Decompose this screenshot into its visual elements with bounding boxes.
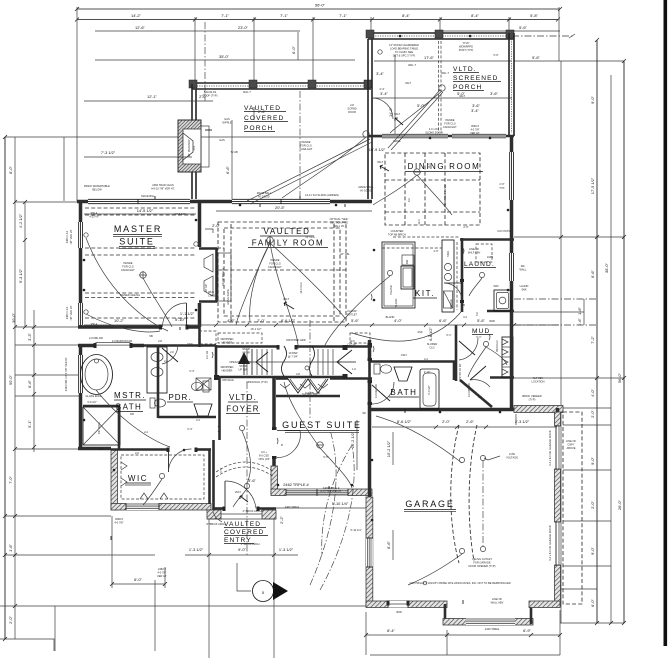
svg-text:PDR.: PDR.: [168, 393, 191, 402]
svg-text:DROPPED: DROPPED: [221, 337, 234, 341]
svg-text:7'-0": 7'-0": [8, 476, 13, 484]
svg-text:5'-1": 5'-1": [27, 420, 32, 428]
svg-text:VALT: VALT: [459, 94, 466, 98]
svg-text:MAL.T: MAL.T: [243, 90, 251, 94]
svg-text:DINING ROOM: DINING ROOM: [408, 162, 481, 171]
svg-text:6-4 1/2": 6-4 1/2": [428, 327, 433, 341]
svg-text:DET & SPC 3 TYP): DET & SPC 3 TYP): [393, 54, 416, 58]
svg-text:1'-6": 1'-6": [577, 307, 582, 315]
svg-text:COV PATIO: COV PATIO: [497, 229, 511, 233]
svg-text:3-0 BARN DOOR: 3-0 BARN DOOR: [112, 339, 132, 343]
svg-text:DR. WALL: DR. WALL: [97, 421, 101, 434]
svg-text:MSTR.: MSTR.: [114, 391, 146, 400]
svg-text:VAULTED: VAULTED: [224, 521, 261, 528]
svg-text:3068 #: 3068 #: [115, 517, 123, 521]
svg-text:6'-1": 6'-1": [476, 335, 481, 339]
svg-text:VER HT.: VER HT.: [470, 131, 480, 135]
svg-text:3'-6": 3'-6": [248, 478, 256, 483]
svg-text:350-4: 350-4: [91, 322, 98, 326]
svg-text:OPEN RAIL (TYP): OPEN RAIL (TYP): [229, 360, 250, 364]
svg-text:FOR CLG: FOR CLG: [269, 262, 281, 266]
svg-text:1'-6": 1'-6": [8, 544, 13, 552]
svg-text:CLG HT: CLG HT: [347, 343, 357, 347]
svg-text:5'-5": 5'-5": [323, 455, 328, 459]
svg-text:12'-1": 12'-1": [147, 94, 158, 99]
svg-text:GLASS ENCL.: GLASS ENCL.: [85, 394, 102, 398]
svg-text:4-23 VF: 4-23 VF: [89, 326, 99, 330]
svg-text:6'-6": 6'-6": [439, 318, 447, 323]
svg-text:190B: 190B: [487, 255, 493, 259]
svg-text:BENCH #: BENCH #: [495, 340, 499, 352]
svg-text:WDWRPPD: WDWRPPD: [459, 45, 473, 49]
svg-text:9-0 x 8-0 OH GARAGE DOOR: 9-0 x 8-0 OH GARAGE DOOR: [548, 430, 552, 465]
svg-text:5'-5": 5'-5": [219, 467, 223, 472]
svg-text:8-0 CSD: 8-0 CSD: [259, 454, 269, 458]
svg-text:3060 #: 3060 #: [471, 124, 479, 128]
svg-text:2-4: 2-4: [196, 418, 200, 422]
svg-text:6'-0": 6'-0": [291, 46, 296, 54]
svg-text:VLTD.: VLTD.: [453, 66, 477, 73]
svg-text:OPEN RAIL (TYP): OPEN RAIL (TYP): [246, 380, 267, 384]
svg-text:RAISED CEILNG: RAISED CEILNG: [120, 293, 140, 297]
svg-text:2460 # 4-0: 2460 # 4-0: [65, 306, 69, 319]
svg-text:SNK: SNK: [521, 288, 527, 292]
svg-text:4-0 DEL DR: 4-0 DEL DR: [374, 384, 378, 398]
svg-text:8'-0": 8'-0": [8, 166, 13, 174]
svg-text:FLOOR: FLOOR: [348, 309, 357, 313]
svg-text:VER HT.: VER HT.: [157, 574, 167, 578]
svg-text:VOLTAGE: VOLTAGE: [506, 456, 518, 460]
svg-text:LOAD BEARING TABLE: LOAD BEARING TABLE: [390, 47, 418, 51]
svg-text:3040: 3040: [396, 610, 402, 614]
svg-text:10 RSR: 10 RSR: [288, 351, 297, 355]
svg-text:2-6: 2-6: [170, 350, 174, 354]
svg-text:56'-0": 56'-0": [315, 3, 326, 8]
svg-text:9-0 x 8-0 OH GARAGE DOOR: 9-0 x 8-0 OH GARAGE DOOR: [548, 525, 552, 560]
svg-text:14'-0": 14'-0": [388, 106, 393, 117]
svg-text:2-4: 2-4: [144, 430, 148, 434]
svg-text:RECESSED CLNG: RECESSED CLNG: [443, 185, 447, 207]
svg-text:SINK: SINK: [446, 251, 450, 257]
svg-text:TILE: TILE: [98, 447, 104, 451]
svg-text:DR: DR: [130, 412, 134, 416]
svg-text:WHC: WHC: [208, 290, 214, 294]
svg-text:FAN/LGHT: FAN/LGHT: [300, 147, 313, 151]
svg-text:3'-6": 3'-6": [472, 103, 480, 108]
svg-text:2'-0": 2'-0": [8, 616, 13, 624]
svg-text:6'-0": 6'-0": [590, 599, 595, 607]
svg-text:1'-6": 1'-6": [577, 318, 582, 326]
svg-text:2460 TABLE: 2460 TABLE: [285, 505, 300, 509]
svg-text:STAIR: STAIR: [239, 364, 247, 368]
svg-text:2-8: 2-8: [158, 339, 162, 343]
svg-text:SD: SD: [362, 411, 366, 415]
svg-text:4'-2 1/2": 4'-2 1/2": [18, 213, 23, 228]
svg-text:HI GOOD: HI GOOD: [360, 189, 371, 193]
svg-text:2'-10": 2'-10": [424, 370, 431, 374]
svg-text:LOCATION: LOCATION: [531, 380, 544, 384]
svg-text:6'-9": 6'-9": [523, 628, 531, 633]
svg-text:CSLY: CSLY: [401, 353, 408, 357]
svg-text:14'-3 1/2": 14'-3 1/2": [175, 212, 186, 216]
svg-text:7'-1": 7'-1": [221, 13, 229, 18]
svg-text:2'-0": 2'-0": [463, 225, 468, 229]
svg-text:2462 TRPLE #: 2462 TRPLE #: [283, 482, 309, 487]
svg-text:CHAS: CHAS: [208, 294, 215, 298]
svg-text:8'-6": 8'-6": [590, 270, 595, 278]
svg-text:OPG (OP: OPG (OP: [258, 457, 269, 461]
svg-text:(TYP): (TYP): [529, 398, 536, 402]
svg-text:NIPPLE: NIPPLE: [222, 121, 231, 125]
svg-text:5'-10": 5'-10": [175, 317, 186, 322]
svg-text:3'-3": 3'-3": [27, 333, 32, 341]
svg-text:WALL ABV: WALL ABV: [491, 601, 504, 605]
svg-text:5'-10 1/4": 5'-10 1/4": [351, 528, 362, 532]
svg-text:8'-6": 8'-6": [386, 541, 391, 549]
svg-text:8-10 7/8" VER HT.: 8-10 7/8" VER HT.: [320, 490, 341, 494]
svg-text:8'-6 1/2": 8'-6 1/2": [281, 318, 296, 323]
svg-text:FOR GARAGE: FOR GARAGE: [473, 561, 491, 565]
svg-text:MACE BALL: MACE BALL: [257, 191, 272, 195]
svg-text:5-0: 5-0: [475, 312, 479, 316]
svg-text:30'-0": 30'-0": [11, 312, 16, 323]
svg-text:VALT: VALT: [405, 81, 412, 85]
svg-text:6-0: 6-0: [407, 198, 411, 202]
svg-text:17'-6": 17'-6": [424, 55, 435, 60]
svg-text:1-0: 1-0: [352, 367, 356, 371]
svg-text:2'-3 1/2": 2'-3 1/2": [515, 419, 530, 424]
svg-text:14-0 CLG: 14-0 CLG: [299, 282, 303, 293]
svg-text:WALL: WALL: [520, 268, 528, 272]
svg-text:FAMILY ROOM: FAMILY ROOM: [252, 239, 324, 248]
svg-text:8'-6 1/2": 8'-6 1/2": [397, 419, 412, 424]
svg-text:5'-6": 5'-6": [532, 55, 540, 60]
svg-text:2460 TABLE #: 2460 TABLE #: [323, 486, 340, 490]
svg-text:3-4: 3-4: [478, 395, 482, 399]
svg-text:2'-0": 2'-0": [257, 318, 265, 323]
svg-text:POST (TYP): POST (TYP): [459, 48, 474, 52]
svg-text:2460 #: 2460 #: [158, 567, 166, 571]
svg-text:PENDE: PENDE: [446, 118, 455, 122]
svg-text:50'-0": 50'-0": [8, 374, 13, 385]
svg-text:6'-3": 6'-3": [187, 427, 192, 431]
svg-text:4-23 VF: 4-23 VF: [89, 215, 99, 219]
svg-text:VALT: VALT: [283, 297, 290, 301]
svg-text:4-0 DBL DR: 4-0 DBL DR: [467, 383, 471, 397]
svg-text:SCREENED: SCREENED: [453, 75, 498, 82]
svg-text:FAN/LIGHT: FAN/LIGHT: [121, 268, 135, 272]
svg-text:CLG: CLG: [429, 346, 434, 350]
svg-text:26'-0": 26'-0": [617, 499, 622, 510]
svg-text:FPL: FPL: [192, 145, 196, 150]
svg-text:3'-6": 3'-6": [490, 91, 498, 96]
svg-text:MACE BILL: MACE BILL: [141, 194, 155, 198]
svg-text:2-6 DBL DR: 2-6 DBL DR: [89, 336, 103, 340]
svg-text:OUTLET: OUTLET: [347, 313, 358, 317]
svg-text:12'-6": 12'-6": [135, 25, 146, 30]
svg-text:9'-0": 9'-0": [590, 96, 595, 104]
svg-text:DR.: DR.: [521, 264, 526, 268]
svg-text:VAULTED: VAULTED: [244, 105, 281, 112]
svg-text:SSD: SSD: [187, 342, 192, 346]
svg-text:35'-0": 35'-0": [219, 54, 230, 59]
svg-text:UP 8R: UP 8R: [242, 351, 250, 355]
svg-text:24" DP BENCH: 24" DP BENCH: [221, 268, 225, 286]
svg-text:DROPPED HDR: DROPPED HDR: [286, 338, 305, 342]
svg-text:ISLAND: ISLAND: [389, 285, 393, 294]
svg-text:8'-4": 8'-4": [402, 13, 410, 18]
svg-text:350-4: 350-4: [91, 211, 98, 215]
svg-text:@ 7 3/4": @ 7 3/4": [288, 355, 298, 359]
svg-text:GAS: GAS: [224, 117, 230, 121]
svg-text:3'-4": 3'-4": [379, 87, 384, 91]
svg-text:DOOR OPENER (TYP): DOOR OPENER (TYP): [469, 564, 496, 568]
svg-text:9'-0": 9'-0": [590, 547, 595, 555]
svg-text:9-0 DBL. DR.: 9-0 DBL. DR.: [305, 391, 321, 395]
svg-text:1'-3 1/2": 1'-3 1/2": [189, 547, 204, 552]
svg-text:4-0 7/8": 4-0 7/8": [158, 571, 167, 575]
svg-text:GAS: GAS: [219, 138, 225, 142]
svg-text:"6"x6": "6"x6": [463, 41, 470, 45]
svg-text:B: B: [463, 303, 465, 307]
svg-text:5: 5: [262, 590, 264, 595]
svg-text:2'-0": 2'-0": [499, 182, 504, 186]
svg-text:ALT KEY: ALT KEY: [533, 376, 544, 380]
svg-text:38'-0": 38'-0": [604, 262, 609, 273]
svg-text:1'-1 1/2": 1'-1 1/2": [180, 311, 195, 316]
svg-text:UP 16R: UP 16R: [238, 368, 247, 372]
svg-text:3'-4": 3'-4": [380, 91, 388, 96]
svg-text:4'-0": 4'-0": [394, 318, 402, 323]
svg-text:FRIDGE: FRIDGE: [449, 299, 453, 309]
svg-text:2-4: 2-4: [424, 357, 428, 361]
svg-text:PNTRY 16 DP: PNTRY 16 DP: [458, 363, 462, 380]
svg-text:6'-3": 6'-3": [189, 369, 194, 373]
svg-text:OPTICAL "SEE": OPTICAL "SEE": [330, 217, 349, 221]
svg-text:1'-3 1/2": 1'-3 1/2": [279, 547, 294, 552]
svg-text:10'-2 1/2": 10'-2 1/2": [386, 440, 391, 457]
svg-text:4'-6": 4'-6": [227, 318, 235, 323]
svg-text:DOOR: DOOR: [348, 110, 356, 114]
svg-text:WALL VF.: WALL VF.: [333, 224, 345, 228]
svg-text:2460 TRAD CHAS: 2460 TRAD CHAS: [152, 183, 174, 187]
svg-text:LAUND: LAUND: [520, 284, 529, 288]
svg-text:SLAND: SLAND: [394, 299, 398, 308]
svg-text:FOR CLG: FOR CLG: [300, 144, 312, 148]
svg-text:10'-2": 10'-2": [114, 318, 125, 323]
svg-text:HEADER: HEADER: [222, 369, 233, 373]
svg-text:LINE OF: LINE OF: [469, 247, 480, 251]
svg-text:2-4: 2-4: [164, 359, 168, 363]
svg-text:9'-0": 9'-0": [590, 457, 595, 465]
svg-text:GARAGE: GARAGE: [405, 499, 454, 509]
svg-text:COVERED: COVERED: [244, 115, 284, 122]
svg-text:8" BRICK ARCH: 8" BRICK ARCH: [207, 522, 226, 526]
svg-text:12-0: 12-0: [427, 163, 431, 169]
svg-text:20'-5": 20'-5": [275, 205, 286, 210]
svg-text:14' CLG: 14' CLG: [305, 235, 314, 239]
svg-text:MAKE WALL: MAKE WALL: [358, 185, 374, 189]
svg-text:5'-8": 5'-8": [530, 13, 538, 18]
svg-text:KIT.: KIT.: [415, 289, 435, 298]
svg-text:SLOPED: SLOPED: [427, 342, 438, 346]
svg-text:2-8: 2-8: [296, 372, 300, 376]
svg-text:2444 TWL # 8-0 7/8" VER HT.: 2444 TWL # 8-0 7/8" VER HT.: [64, 357, 68, 392]
svg-text:42" MASONRY: 42" MASONRY: [187, 139, 191, 157]
svg-text:5'-6": 5'-6": [519, 25, 527, 30]
svg-text:4-0 7/8": 4-0 7/8": [471, 128, 480, 132]
svg-text:2'-0": 2'-0": [442, 419, 450, 424]
svg-text:9'-3 1/2": 9'-3 1/2": [18, 268, 23, 283]
svg-text:5'-0 1/2": 5'-0 1/2": [427, 385, 431, 395]
svg-text:12-0: 12-0: [417, 219, 421, 225]
svg-text:BLAND: BLAND: [386, 315, 395, 319]
svg-text:BELOW: BELOW: [92, 188, 102, 192]
svg-text:GUEST SUITE: GUEST SUITE: [282, 420, 362, 430]
svg-text:6'-6": 6'-6": [225, 166, 230, 174]
svg-text:FAN/LIGHT: FAN/LIGHT: [443, 125, 457, 129]
svg-text:16'-1 1/2": 16'-1 1/2": [251, 327, 262, 331]
svg-text:2440 TABLE: 2440 TABLE: [485, 627, 500, 631]
svg-text:8'-4": 8'-4": [471, 13, 479, 18]
svg-text:10-0: 10-0: [349, 339, 355, 343]
svg-text:STAIR: STAIR: [242, 347, 250, 351]
svg-text:5'-6": 5'-6": [477, 318, 485, 323]
svg-text:HI GOOD: HI GOOD: [258, 195, 269, 199]
svg-text:WIC: WIC: [128, 474, 148, 483]
svg-text:MASTER: MASTER: [114, 224, 162, 234]
svg-text:VALT: VALT: [394, 112, 401, 116]
svg-text:14'-5 1/2": 14'-5 1/2": [137, 208, 154, 213]
svg-text:HEADER: HEADER: [222, 341, 233, 345]
svg-text:SHLF ABV: SHLF ABV: [468, 251, 481, 255]
svg-text:VALT.: VALT.: [235, 490, 242, 494]
svg-text:BATH: BATH: [390, 388, 417, 397]
svg-text:7'-1": 7'-1": [280, 13, 288, 18]
svg-text:4'-0": 4'-0": [433, 249, 438, 253]
svg-text:3-4: 3-4: [463, 315, 467, 319]
svg-text:LAUND.: LAUND.: [464, 261, 495, 268]
svg-text:VLTD.: VLTD.: [229, 393, 257, 402]
svg-text:SB: SB: [149, 334, 153, 338]
svg-text:7'-2": 7'-2": [590, 336, 595, 344]
svg-text:VAULTED: VAULTED: [264, 227, 311, 236]
svg-text:DW: DW: [405, 259, 409, 264]
svg-text:PENDE: PENDE: [302, 140, 311, 144]
svg-text:# 8-10 7/8" VER HT.: # 8-10 7/8" VER HT.: [151, 187, 175, 191]
svg-text:2'-0": 2'-0": [590, 410, 595, 418]
svg-text:23'-0": 23'-0": [238, 25, 249, 30]
svg-text:2460 # 4-0: 2460 # 4-0: [65, 230, 69, 243]
svg-text:12-0 x 8-0 SLDNG (HIDDEN): 12-0 x 8-0 SLDNG (HIDDEN): [305, 193, 339, 197]
svg-text:3'-9 1/2": 3'-9 1/2": [87, 400, 97, 404]
svg-text:FAN/LIGHT: FAN/LIGHT: [268, 265, 282, 269]
svg-text:2-8: 2-8: [350, 103, 354, 107]
svg-text:16" CBL: 16" CBL: [340, 252, 350, 256]
svg-text:7/8" VER HT.: 7/8" VER HT.: [69, 229, 73, 244]
svg-text:PORCH: PORCH: [244, 125, 273, 132]
svg-text:DROPPED: DROPPED: [221, 365, 234, 369]
svg-text:3-0 +: 3-0 +: [261, 450, 267, 454]
svg-text:2-6: 2-6: [135, 451, 139, 455]
svg-text:2'-0": 2'-0": [590, 501, 595, 509]
svg-text:B: B: [281, 443, 283, 447]
svg-text:5'-10 1/4": 5'-10 1/4": [332, 501, 349, 506]
svg-text:4-0 x 8-0: 4-0 x 8-0: [429, 127, 440, 131]
svg-text:14'-2": 14'-2": [131, 13, 142, 18]
svg-text:3'-4": 3'-4": [471, 108, 479, 113]
svg-text:PENDE: PENDE: [271, 258, 280, 262]
svg-text:W/D: W/D: [493, 284, 498, 288]
svg-text:AGNG SGPE: AGNG SGPE: [226, 289, 230, 305]
svg-text:MUD: MUD: [472, 328, 490, 335]
svg-text:SLDNG DOOR: SLDNG DOOR: [425, 131, 443, 135]
svg-text:6'-6": 6'-6": [27, 380, 32, 388]
svg-text:10'-2 1/2": 10'-2 1/2": [350, 431, 355, 448]
svg-text:5'-6": 5'-6": [351, 318, 359, 323]
svg-text:WAL.T: WAL.T: [441, 71, 449, 75]
svg-text:7/8" VER HT.: 7/8" VER HT.: [69, 305, 73, 320]
svg-text:12" ROOM CHAMFERED: 12" ROOM CHAMFERED: [389, 43, 419, 47]
svg-text:CNPY: CNPY: [567, 443, 574, 447]
svg-text:ABOVE: ABOVE: [567, 446, 576, 450]
svg-text:2-0 1/2: 2-0 1/2: [205, 350, 209, 359]
svg-text:MAKE: MAKE: [393, 139, 401, 143]
svg-text:FOR CLG: FOR CLG: [122, 265, 134, 269]
svg-text:VALT: VALT: [377, 160, 384, 164]
svg-text:7'-3 1/2": 7'-3 1/2": [101, 150, 116, 155]
svg-text:WAL.T: WAL.T: [408, 63, 416, 67]
svg-text:2'-2": 2'-2": [279, 516, 284, 524]
svg-text:2-6: 2-6: [428, 334, 432, 338]
svg-text:2'-0": 2'-0": [212, 223, 220, 228]
svg-text:BALNS AS: BALNS AS: [204, 90, 217, 94]
svg-text:PORCH: PORCH: [453, 84, 482, 91]
svg-text:OPN RAIL: OPN RAIL: [222, 378, 235, 382]
svg-text:COUNTER: COUNTER: [391, 229, 404, 233]
svg-text:5'-0": 5'-0": [417, 103, 425, 108]
svg-text:7'-1": 7'-1": [339, 13, 347, 18]
svg-text:17'-5 1/2": 17'-5 1/2": [590, 177, 595, 194]
svg-text:SECTION FIVE: SECTION FIVE: [330, 221, 348, 225]
svg-text:SUITE: SUITE: [119, 237, 155, 247]
svg-text:LINE OF: LINE OF: [492, 597, 503, 601]
svg-text:6'-1": 6'-1": [446, 333, 451, 337]
svg-text:SCRND: SCRND: [347, 107, 356, 111]
svg-text:3'-4": 3'-4": [376, 71, 384, 76]
svg-text:FOR CLG: FOR CLG: [444, 122, 456, 126]
svg-text:1" BRICK ARCH: 1" BRICK ARCH: [241, 542, 260, 546]
svg-text:6'-0": 6'-0": [134, 577, 142, 582]
svg-text:BATH: BATH: [116, 403, 142, 412]
svg-text:10'-9 1/2": 10'-9 1/2": [369, 147, 386, 152]
svg-text:CELNG OUTLET: CELNG OUTLET: [472, 557, 492, 561]
svg-text:COVERED: COVERED: [224, 529, 264, 536]
svg-text:LOW: LOW: [509, 452, 515, 456]
svg-text:2'-6": 2'-6": [466, 419, 474, 424]
svg-text:9'-0": 9'-0": [238, 547, 246, 552]
svg-text:BRICK WATERTABLE: BRICK WATERTABLE: [84, 184, 110, 188]
svg-text:4-0 7/8": 4-0 7/8": [115, 521, 124, 525]
svg-text:5'-6": 5'-6": [493, 53, 498, 57]
svg-text:PENDE: PENDE: [124, 261, 133, 265]
svg-text:LINE OF: LINE OF: [566, 439, 577, 443]
svg-text:TOP AB BRICH: TOP AB BRICH: [388, 233, 406, 237]
svg-text:8'-4": 8'-4": [387, 628, 395, 633]
svg-text:BRICK VENEER: BRICK VENEER: [522, 394, 541, 398]
svg-text:TYP.: TYP.: [499, 186, 505, 190]
svg-text:4'-0": 4'-0": [590, 389, 595, 397]
